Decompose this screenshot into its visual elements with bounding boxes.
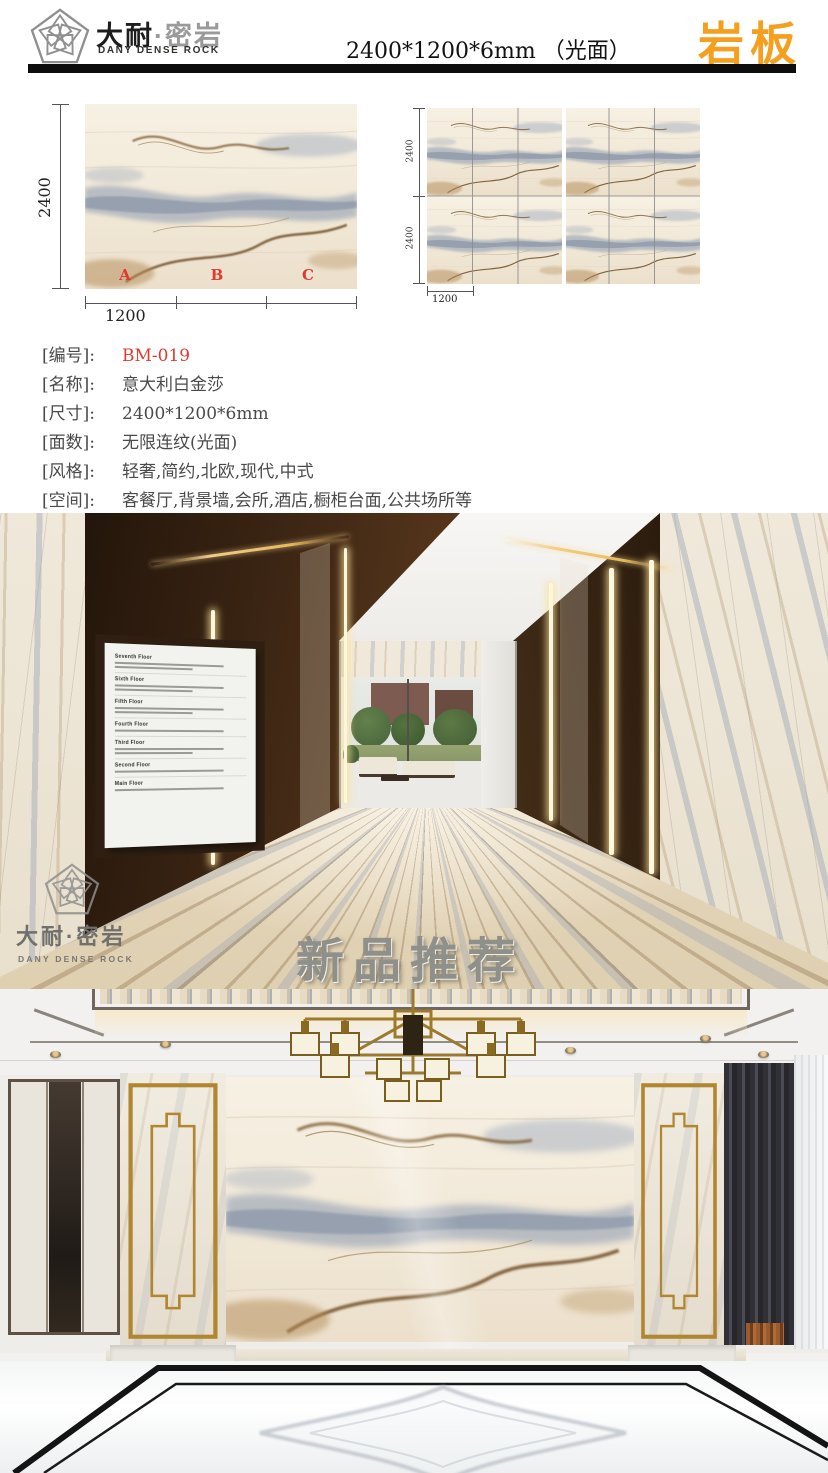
slab-width-label: 1200 <box>105 306 146 325</box>
brand-name-en: DANY DENSE ROCK <box>98 45 220 56</box>
tiled-layout-drawing <box>427 108 700 284</box>
directory-text-bar <box>115 787 224 791</box>
tree <box>351 707 391 747</box>
spec-label: [面数]: <box>42 428 116 453</box>
elevator-light-strip <box>649 560 654 874</box>
spec-row-style: [风格]:轻奢,简约,北欧,现代,中式 <box>42 457 314 482</box>
ceiling-corner-trim <box>34 1008 105 1036</box>
sofa <box>359 757 397 777</box>
panel-frame-line <box>82 1082 84 1332</box>
spec-label: [尺寸]: <box>42 399 116 424</box>
dark-curtain <box>724 1063 796 1345</box>
hallway-render: Seventh Floor Sixth Floor Fifth Floor Fo… <box>0 513 828 989</box>
dimension-tick <box>413 108 425 109</box>
directory-floor-label: Fifth Floor <box>115 699 247 707</box>
recessed-spotlight <box>758 1051 769 1058</box>
watermark-brand-cn: 大耐·密岩 <box>16 919 176 951</box>
directory-text-bar <box>115 711 193 714</box>
gold-lattice-frame <box>634 1073 724 1349</box>
dimension-tick <box>413 196 425 197</box>
elevator-light-strip <box>609 568 614 855</box>
spec-label: [空间]: <box>42 486 116 511</box>
sheer-curtain <box>794 1055 828 1349</box>
right-marble-pillar <box>634 1073 724 1349</box>
spec-row-faces: [面数]:无限连纹(光面) <box>42 428 237 453</box>
spec-value-space: 客餐厅,背景墙,会所,酒店,橱柜台面,公共场所等 <box>122 491 472 511</box>
coffee-table <box>381 775 409 781</box>
dimension-tick <box>427 286 428 296</box>
product-poster: 大耐·密岩 DANY DENSE ROCK 2400*1200*6mm （光面）… <box>0 0 828 1473</box>
watermark-brand-en: DANY DENSE ROCK <box>18 954 176 964</box>
chandelier <box>245 989 581 1129</box>
directory-floor-label: Second Floor <box>115 762 247 769</box>
tiled-horizontal-dimension-line <box>427 291 473 292</box>
floor-inlay-graphic <box>0 1361 828 1473</box>
tiled-height-label-bottom: 2400 <box>405 227 415 250</box>
spec-row-size: [尺寸]:2400*1200*6mm <box>42 399 269 424</box>
directory-row: Main Floor <box>115 776 247 795</box>
directory-row: Sixth Floor <box>115 673 247 698</box>
spec-row-space: [空间]:客餐厅,背景墙,会所,酒店,橱柜台面,公共场所等 <box>42 486 472 511</box>
spec-value-faces: 无限连纹(光面) <box>122 433 237 453</box>
spec-label: [编号]: <box>42 341 116 366</box>
brand-watermark: 大耐·密岩 DANY DENSE ROCK <box>16 863 176 964</box>
recessed-spotlight <box>50 1051 61 1058</box>
panel-frame-line <box>46 1082 48 1332</box>
lobby-column <box>481 641 515 808</box>
dimension-tick <box>52 104 69 105</box>
product-size-title: 2400*1200*6mm （光面） <box>346 33 631 65</box>
spec-label: [风格]: <box>42 457 116 482</box>
side-panel-door <box>8 1079 120 1335</box>
hallway-end-lobby <box>339 641 517 808</box>
dimension-tick <box>52 288 69 289</box>
dimension-tick <box>266 296 267 309</box>
dimension-tick <box>413 283 425 284</box>
cut-label-c: C <box>293 266 323 284</box>
livingroom-floor <box>0 1361 828 1473</box>
curtain-accent-bars <box>746 1323 784 1345</box>
spec-list: [编号]:BM-019 [名称]:意大利白金莎 [尺寸]:2400*1200*6… <box>0 341 828 513</box>
elevator-light-strip <box>344 548 347 803</box>
directory-text-bar <box>115 688 193 692</box>
directory-text-bar <box>115 707 224 711</box>
spec-value-code: BM-019 <box>122 346 190 366</box>
directory-text-bar <box>115 752 193 754</box>
recessed-spotlight <box>160 1041 171 1048</box>
vertical-dimension-line <box>60 104 61 289</box>
spec-value-style: 轻奢,简约,北欧,现代,中式 <box>122 462 314 482</box>
directory-text-bar <box>115 730 224 733</box>
window-mullion <box>407 679 409 761</box>
directory-text-bar <box>115 666 193 670</box>
dimension-tick <box>356 296 357 309</box>
brand-logo-icon <box>44 863 100 915</box>
panel-dark-strip <box>49 1082 81 1332</box>
livingroom-render <box>0 989 828 1473</box>
technical-drawings: 2400 1200 A B C 2400 2400 <box>0 90 828 335</box>
horizontal-dimension-line <box>85 303 357 304</box>
cut-label-b: B <box>202 266 232 284</box>
spec-label: [名称]: <box>42 370 116 395</box>
brand-logo-icon <box>30 8 90 64</box>
new-product-title: 新品推荐 <box>296 921 524 989</box>
directory-text-bar <box>115 748 224 750</box>
directory-floor-label: Main Floor <box>115 779 247 787</box>
header: 大耐·密岩 DANY DENSE ROCK 2400*1200*6mm （光面）… <box>0 0 828 90</box>
tiled-height-label-top: 2400 <box>405 140 415 163</box>
lobby-window <box>349 679 481 761</box>
directory-row: Fifth Floor <box>115 696 247 720</box>
spec-value-size: 2400*1200*6mm <box>122 404 269 424</box>
sofa <box>403 761 455 778</box>
elevator-light-strip <box>549 583 553 821</box>
directory-row: Second Floor <box>115 759 247 778</box>
dimension-tick <box>85 296 86 309</box>
slab-height-label: 2400 <box>35 177 54 218</box>
single-slab-drawing <box>85 104 357 289</box>
left-marble-pillar <box>120 1073 226 1349</box>
directory-text-bar <box>115 770 224 773</box>
dimension-tick <box>176 296 177 309</box>
spec-value-name: 意大利白金莎 <box>122 375 224 395</box>
floor-directory-sign: Seventh Floor Sixth Floor Fifth Floor Fo… <box>105 643 256 848</box>
tree <box>433 709 477 749</box>
spec-row-name: [名称]:意大利白金莎 <box>42 370 224 395</box>
recessed-spotlight <box>700 1035 711 1042</box>
directory-row: Third Floor <box>115 737 247 760</box>
gold-lattice-frame <box>120 1073 226 1349</box>
directory-floor-label: Fourth Floor <box>115 721 247 728</box>
tiled-width-label: 1200 <box>432 294 457 305</box>
spec-row-code: [编号]:BM-019 <box>42 341 190 366</box>
directory-floor-label: Third Floor <box>115 740 247 746</box>
directory-row: Fourth Floor <box>115 718 247 737</box>
header-divider <box>28 64 796 73</box>
cut-label-a: A <box>110 266 140 284</box>
dimension-tick <box>473 286 474 296</box>
